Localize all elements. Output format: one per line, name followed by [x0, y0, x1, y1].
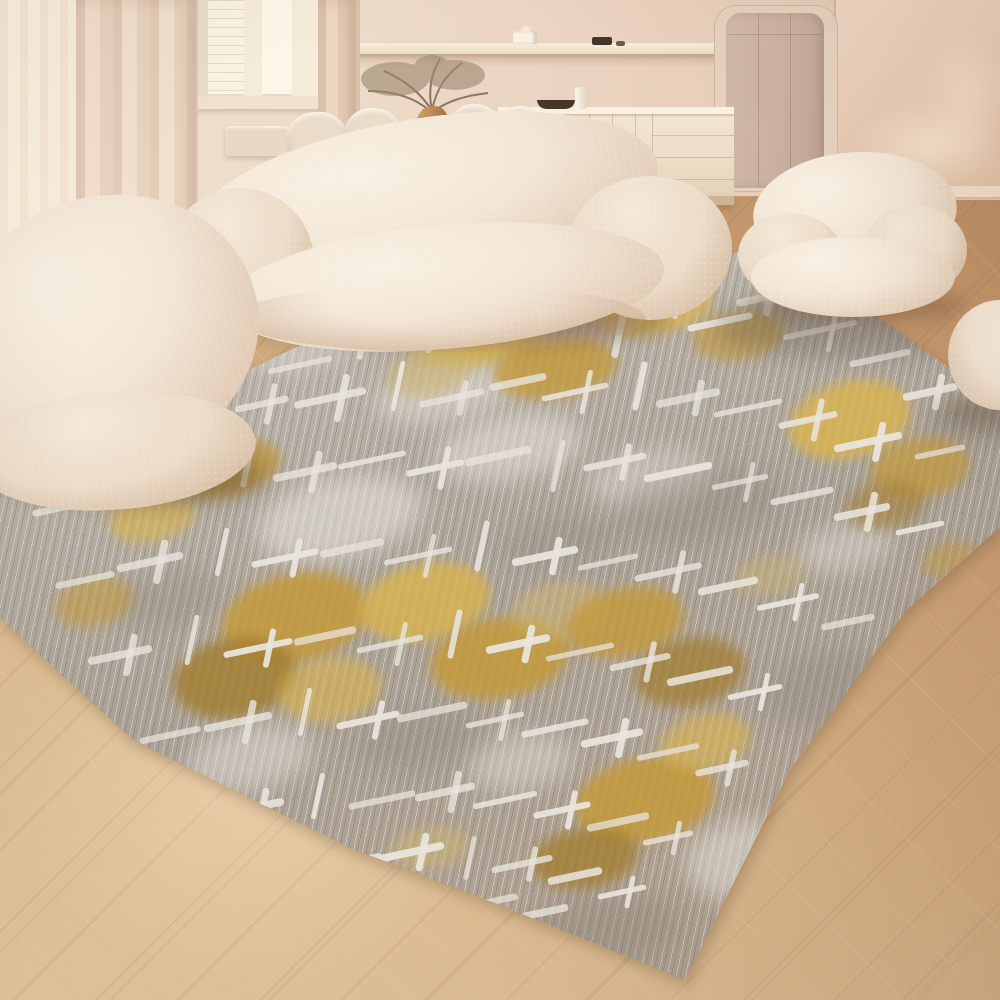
window-pane: [262, 0, 292, 94]
window-sill: [190, 96, 326, 109]
shelf-small-object: [616, 41, 625, 46]
white-cylinder-vase: [575, 87, 587, 109]
window-pane: [208, 0, 244, 94]
sunlight-patch: [0, 560, 500, 1000]
lounge-chair-seat: [751, 237, 955, 317]
shelf-dark-object: [592, 37, 612, 45]
ball-seat: [948, 300, 1000, 410]
lidded-jar: [513, 31, 537, 44]
dark-bowl: [537, 100, 575, 109]
dried-branches: [340, 45, 500, 115]
window-frame-post: [244, 0, 262, 96]
living-room-scene: [0, 0, 1000, 1000]
radiator-panel: [226, 126, 288, 156]
